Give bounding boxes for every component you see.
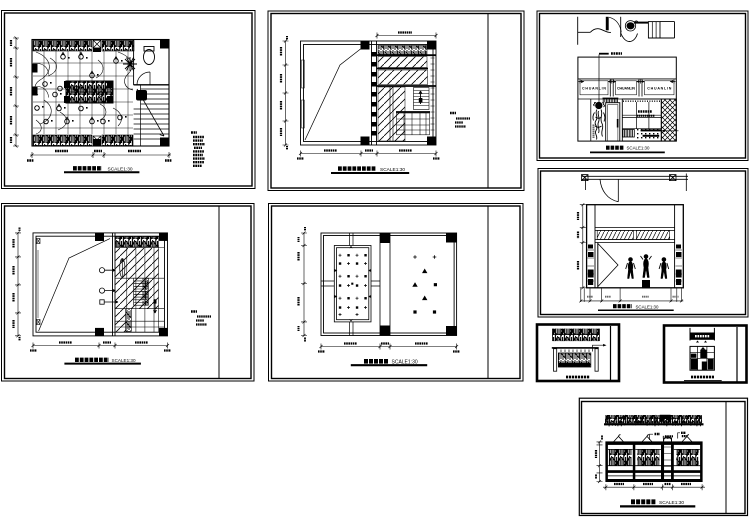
svg-text:CHUANLIN: CHUANLIN <box>617 86 635 90</box>
svg-text:CHUANLIN: CHUANLIN <box>582 86 606 90</box>
svg-text:SCALE1:30: SCALE1:30 <box>659 500 684 506</box>
svg-text:CHUANLIN: CHUANLIN <box>647 86 671 90</box>
svg-text:SCALE1:30: SCALE1:30 <box>380 167 405 173</box>
svg-text:SCALE1:30: SCALE1:30 <box>112 358 136 363</box>
svg-text:SCALE1:30: SCALE1:30 <box>636 304 660 309</box>
svg-text:SCALE1:30: SCALE1:30 <box>627 146 651 151</box>
